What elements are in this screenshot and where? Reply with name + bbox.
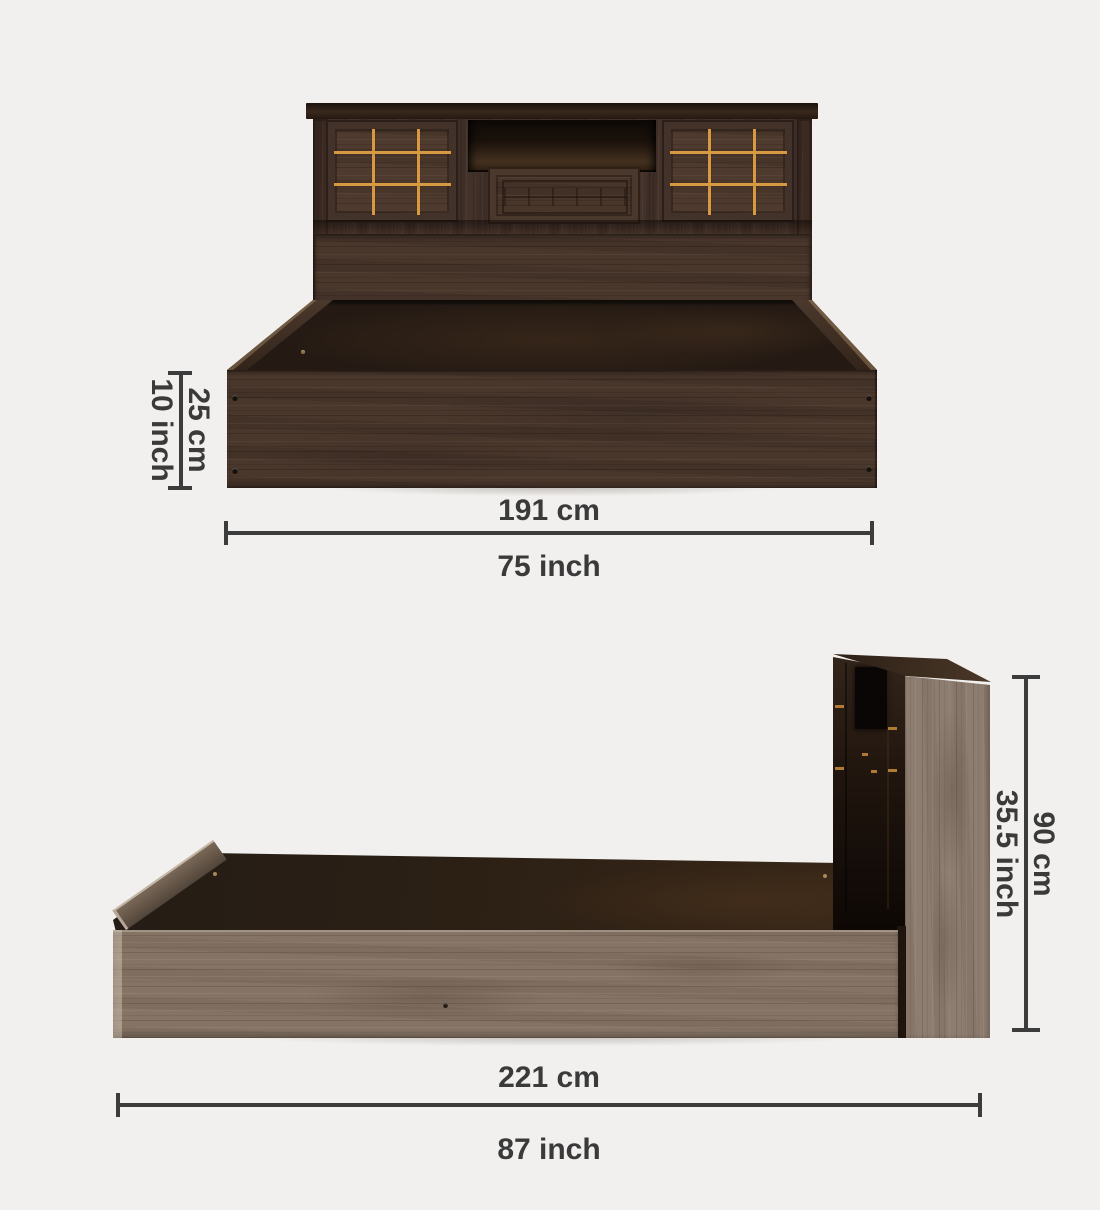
front-width-cm-label: 191 cm	[224, 493, 874, 529]
headboard-center-panel	[488, 167, 640, 224]
headboard-side-face	[905, 674, 990, 1038]
gold-inlay-tick	[888, 727, 897, 730]
gold-inlay-line	[670, 183, 787, 186]
gold-inlay-tick	[862, 753, 868, 756]
shelf-recess-shadow	[855, 667, 887, 729]
center-panel-fret-pattern	[502, 180, 628, 214]
panel-seam	[845, 663, 847, 913]
right-rail-highlight	[225, 298, 879, 370]
left-side-rail	[225, 298, 879, 370]
rail-screw	[443, 1003, 448, 1008]
dimension-cap	[168, 486, 192, 490]
headboard-left-sliding-door	[326, 120, 458, 222]
footboard-screw	[232, 468, 238, 474]
side-view-deck	[110, 850, 907, 934]
gold-inlay-line	[708, 129, 711, 215]
deck-screw	[301, 350, 305, 354]
dimension-line	[116, 1103, 982, 1107]
footboard-screw	[866, 395, 872, 401]
footboard	[227, 370, 877, 488]
side-length-cm-label: 221 cm	[116, 1060, 982, 1096]
headboard	[313, 119, 812, 301]
headboard-rail-band	[313, 220, 812, 234]
front-width-inch-label: 75 inch	[224, 549, 874, 585]
rail-headboard-seam	[897, 926, 906, 1038]
side-length-inch-label: 87 inch	[116, 1132, 982, 1168]
gold-inlay-tick	[871, 770, 877, 773]
gold-inlay-line	[334, 151, 451, 154]
dimension-cap	[870, 521, 874, 545]
dimension-cap	[1012, 1028, 1040, 1032]
left-rail-highlight	[225, 298, 879, 370]
front-height-cm-label: 25 cm	[183, 387, 213, 472]
dimension-cap	[978, 1093, 982, 1117]
headboard-right-sliding-door	[662, 120, 794, 222]
rail-end-grain	[113, 930, 122, 1038]
footboard-screw	[232, 395, 238, 401]
gold-inlay-line	[417, 129, 420, 215]
gold-inlay-tick	[835, 767, 844, 770]
panel-seam	[887, 669, 889, 909]
gold-inlay-line	[334, 183, 451, 186]
bed-storage-deck	[225, 298, 879, 370]
bed-dimension-diagram: 25 cm 10 inch 191 cm 75 inch	[0, 0, 1100, 1210]
headboard-open-shelf	[468, 120, 656, 172]
side-height-cm-label: 90 cm	[1028, 811, 1058, 896]
right-side-rail	[225, 298, 879, 370]
gold-inlay-line	[753, 129, 756, 215]
gold-inlay-tick	[835, 705, 844, 708]
side-view-floor-shadow	[118, 1037, 993, 1050]
deck-screw	[823, 874, 827, 878]
footboard-grain	[227, 370, 877, 488]
front-height-inch-label: 10 inch	[146, 378, 176, 481]
headboard-back-face	[833, 653, 907, 930]
headboard-lower-face	[315, 234, 810, 301]
deck-screw	[213, 872, 217, 876]
gold-inlay-tick	[888, 769, 897, 772]
side-height-inch-label: 35.5 inch	[991, 790, 1021, 918]
gold-inlay-line	[670, 151, 787, 154]
side-rail	[113, 930, 898, 1038]
gold-inlay-line	[372, 129, 375, 215]
footboard-screw	[866, 466, 872, 472]
headboard-top-cap	[306, 103, 818, 119]
dimension-line	[224, 531, 874, 535]
